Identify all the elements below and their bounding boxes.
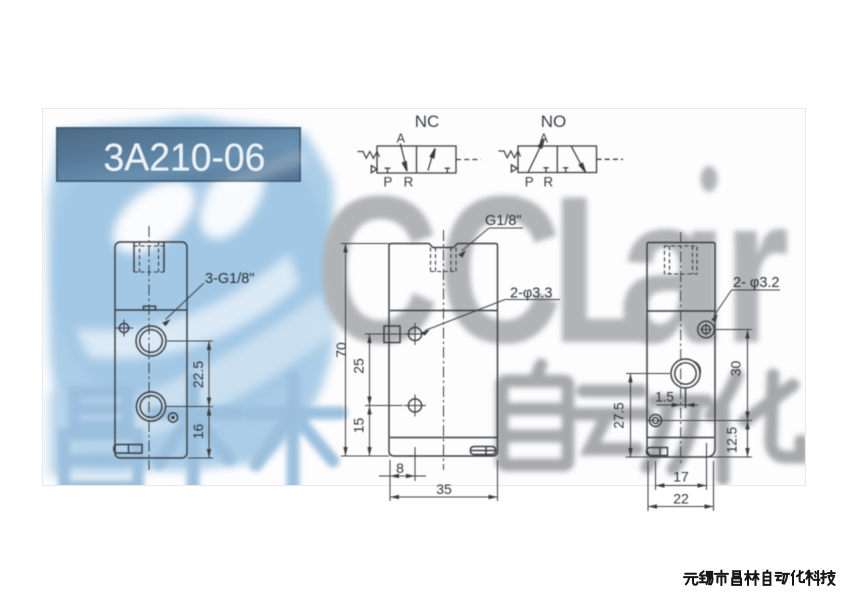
svg-text:2- φ3.2: 2- φ3.2: [733, 275, 779, 291]
svg-text:22.5: 22.5: [190, 361, 206, 388]
svg-text:17: 17: [673, 469, 689, 485]
svg-text:30: 30: [728, 361, 744, 377]
svg-text:25: 25: [351, 358, 367, 374]
svg-text:NC: NC: [415, 112, 440, 131]
svg-text:27.5: 27.5: [612, 402, 627, 428]
svg-text:70: 70: [333, 342, 349, 358]
svg-text:16: 16: [190, 424, 206, 440]
svg-text:22: 22: [673, 491, 689, 507]
svg-text:R: R: [543, 175, 553, 190]
svg-text:R: R: [404, 175, 414, 190]
svg-text:3A210-06: 3A210-06: [104, 137, 266, 180]
svg-text:35: 35: [436, 481, 452, 497]
svg-text:2-φ3.3: 2-φ3.3: [510, 286, 552, 302]
svg-text:12.5: 12.5: [725, 427, 740, 453]
svg-text:NO: NO: [541, 112, 567, 131]
svg-text:P: P: [525, 175, 534, 190]
svg-text:A: A: [540, 132, 549, 146]
svg-text:G1/8": G1/8": [485, 213, 522, 229]
svg-text:3-G1/8": 3-G1/8": [205, 271, 254, 287]
svg-text:15: 15: [351, 418, 367, 434]
svg-text:8: 8: [396, 460, 404, 476]
svg-text:A: A: [397, 132, 406, 146]
svg-text:P: P: [383, 175, 392, 190]
svg-text:1.5: 1.5: [655, 390, 674, 405]
